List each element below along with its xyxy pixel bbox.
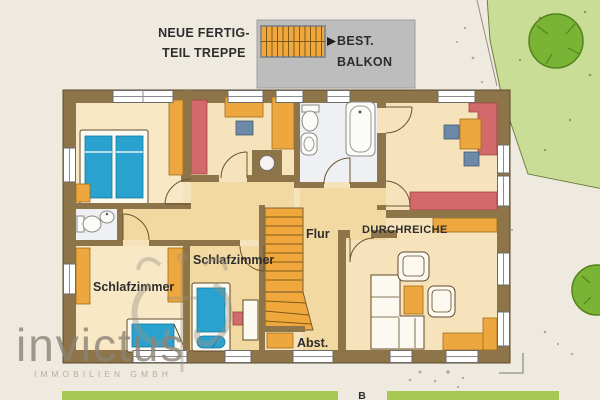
sideboard: [483, 318, 497, 350]
armchair: [428, 286, 455, 317]
section-marker-b: B: [358, 390, 366, 400]
room-label-bedroom-sw: Schlafzimmer: [93, 280, 174, 294]
wardrobe: [272, 97, 294, 149]
balcony-label-line2: BALKON: [337, 55, 392, 69]
wardrobe: [169, 100, 183, 175]
room-label-storage: Abst.: [297, 336, 328, 350]
window: [225, 351, 251, 363]
desk: [243, 300, 258, 340]
room-label-pass-through: DURCHREICHE: [362, 224, 448, 236]
window: [498, 312, 510, 346]
toilet: [302, 105, 319, 131]
washbasin-counter: [252, 150, 282, 176]
room-label-hall: Flur: [306, 227, 330, 241]
window: [446, 351, 478, 363]
chair: [444, 125, 459, 139]
floor-plan-canvas: B BEST. BALKON NEUE FERTIG- TEIL TREPPE: [0, 0, 600, 400]
watermark-name: invictus: [16, 319, 185, 371]
hedge-strip: [62, 391, 338, 400]
dresser: [76, 184, 90, 202]
window: [498, 253, 510, 285]
window: [113, 91, 173, 103]
floor-plan-image: B BEST. BALKON NEUE FERTIG- TEIL TREPPE: [0, 0, 600, 400]
desk-chair: [236, 121, 253, 135]
coffee-table: [404, 286, 423, 314]
window: [438, 91, 475, 103]
chair: [464, 152, 479, 166]
watermark-subtitle: IMMOBILIEN GMBH: [34, 369, 172, 379]
balcony-label-line1: BEST.: [337, 34, 374, 48]
window: [228, 91, 263, 103]
external-staircase: [261, 26, 336, 57]
wardrobe: [191, 100, 207, 174]
hedge-strip: [387, 391, 559, 400]
window: [64, 264, 76, 294]
window: [276, 91, 303, 103]
bathtub: [346, 102, 375, 156]
sink: [301, 133, 317, 155]
sink: [100, 211, 114, 223]
storage-closet: [267, 333, 293, 348]
window: [498, 176, 510, 206]
wardrobe: [76, 248, 90, 304]
window: [293, 351, 333, 363]
window: [390, 351, 412, 363]
armchair: [398, 252, 429, 281]
window: [498, 145, 510, 173]
kitchen-counter: [410, 192, 497, 210]
new-stair-label-line1: NEUE FERTIG-: [158, 26, 250, 40]
window: [64, 148, 76, 182]
new-stair-label-line2: TEIL TREPPE: [162, 46, 246, 60]
tree-icon: [529, 14, 583, 68]
toilet: [77, 216, 101, 232]
balcony: BEST. BALKON: [257, 20, 415, 88]
window: [327, 91, 350, 103]
dining-table: [460, 119, 481, 149]
